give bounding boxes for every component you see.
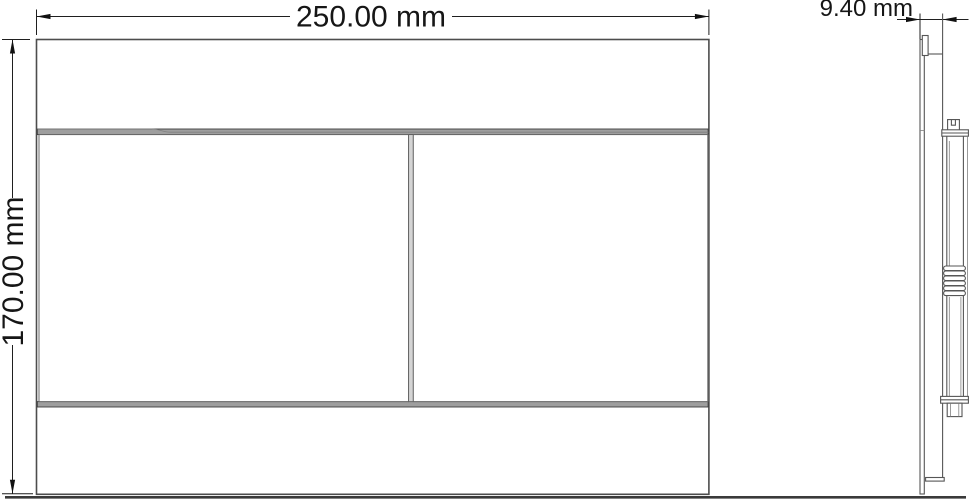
bottom-gap-band — [37, 402, 708, 407]
width-dimension: 250.00 mm — [37, 1, 709, 36]
mount-clip — [922, 36, 928, 56]
spring-coil — [944, 271, 966, 276]
height-dimension: 170.00 mm — [0, 40, 33, 494]
arrowhead-up-icon — [10, 40, 15, 54]
spring-coil — [944, 291, 966, 296]
flush-plate-technical-drawing: 250.00 mm 170.00 mm 9.40 mm — [0, 0, 970, 499]
arrowhead-left-icon — [37, 14, 51, 19]
arrowhead-inward-right-icon — [943, 17, 957, 22]
spring — [944, 266, 966, 296]
depth-dimension-label: 9.40 mm — [820, 0, 913, 22]
height-dimension-label: 170.00 mm — [0, 196, 30, 346]
screw-slot — [951, 120, 955, 126]
spring-coil — [944, 266, 966, 271]
front-view — [37, 40, 709, 495]
depth-dimension: 9.40 mm — [820, 0, 969, 22]
side-plate-profile — [920, 40, 924, 495]
right-flush-button — [413, 135, 708, 402]
spring-coil — [944, 281, 966, 286]
spring-coil — [944, 276, 966, 281]
arrowhead-right-icon — [695, 14, 709, 19]
frame-foot — [926, 478, 945, 482]
arrowhead-down-icon — [10, 480, 15, 494]
side-view — [920, 14, 968, 495]
technical-drawing-page: 250.00 mm 170.00 mm 9.40 mm — [0, 0, 970, 499]
left-flush-button — [39, 135, 409, 402]
mounting-nut — [947, 403, 962, 416]
spring-coil — [944, 286, 966, 291]
width-dimension-label: 250.00 mm — [296, 1, 446, 34]
center-button-gap — [409, 135, 414, 402]
